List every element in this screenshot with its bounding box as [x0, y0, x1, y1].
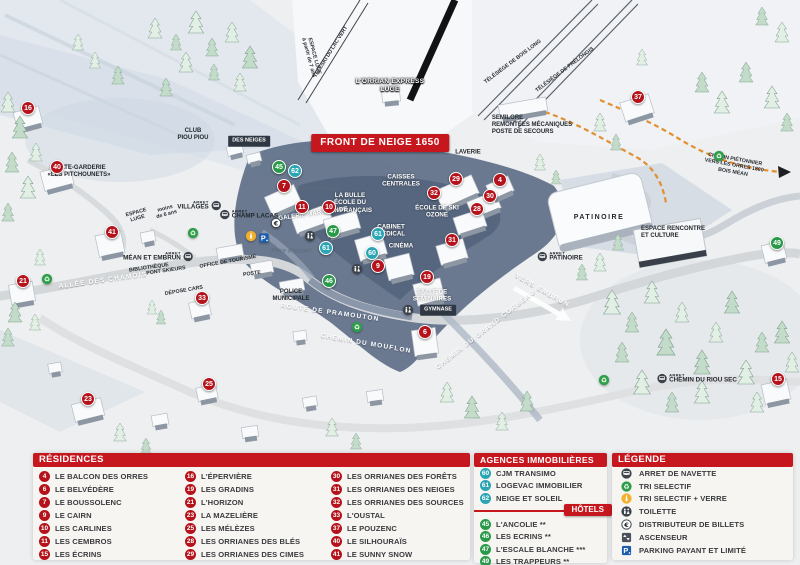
- legend-item-label: LE BALCON DES ORRES: [55, 472, 148, 481]
- pont-skieurs-label: PONT SKIEURS: [146, 265, 186, 277]
- legend-badge: 9: [39, 510, 50, 521]
- legend-item-label: NEIGE ET SOLEIL: [496, 494, 562, 503]
- legend-item: 19LES GRADINS: [185, 483, 331, 496]
- map-marker-41: 41: [105, 225, 119, 239]
- legend-item: 32LES ORRIANES DES SOURCES: [331, 496, 462, 509]
- legend-item: 33L'OUSTAL: [331, 509, 462, 522]
- legend-badge: 29: [185, 549, 196, 560]
- salle-seminaires-label: SALLE DE SÉMINAIRES: [413, 289, 452, 304]
- svg-text:€: €: [273, 219, 279, 227]
- ecole-ski-ozone-label: ÉCOLE DE SKI OZONE: [415, 205, 459, 220]
- bus-stop-label: ARRETMÉAN ET EMBRUN: [123, 252, 181, 263]
- legend-key-item: TOILETTE: [612, 505, 793, 518]
- glass-icon: [246, 231, 257, 242]
- legend-item-label: LA MAZELIÈRE: [201, 511, 258, 520]
- legend-badge: 28: [185, 536, 196, 547]
- legend-badge: 23: [185, 510, 196, 521]
- espace-rencontre-label: ESPACE RENCONTRE ET CULTURE: [641, 226, 705, 240]
- office-de-tourisme-label: OFFICE DE TOURISME: [199, 254, 257, 270]
- map-marker-25: 25: [202, 377, 216, 391]
- map-marker-29: 29: [449, 172, 463, 186]
- legend-item: 7LE BOUSSOLENC: [39, 496, 185, 509]
- legend-item-label: LES GRADINS: [201, 485, 254, 494]
- bus-icon: [220, 210, 230, 220]
- residences-columns: 4LE BALCON DES ORRES6LE BELVÉDÈRE7LE BOU…: [33, 467, 470, 561]
- legend-item-label: LE CAIRN: [55, 511, 92, 520]
- legend-item-label: LES ECRINS **: [496, 532, 551, 541]
- legend-item: 37LE POUZENC: [331, 522, 462, 535]
- legend-item-label: LES MÉLÈZES: [201, 524, 255, 533]
- bus-stop: ARRETMÉAN ET EMBRUN: [123, 252, 193, 263]
- map-marker-9: 9: [371, 259, 385, 273]
- parking-icon: P: [621, 545, 632, 556]
- place-du-festival-label: Place du festival: [296, 186, 340, 193]
- legend-item: 61LOGEVAC IMMOBILIER: [480, 480, 607, 493]
- legend-badge: 4: [39, 471, 50, 482]
- elevator-icon: [621, 532, 632, 543]
- recycle-icon: ♻: [714, 151, 725, 162]
- hotels-divider: HÔTELS: [474, 506, 607, 517]
- parking-icon: P: [259, 233, 270, 244]
- bus-stop: ARRETCHAMP LACAS: [220, 210, 278, 221]
- laverie-label: LAVERIE: [455, 149, 481, 156]
- semilore-label: SEMILORE REMONTÉES MÉCANIQUES POSTE DE S…: [492, 115, 572, 137]
- legend-key-label: TRI SELECTIF + VERRE: [639, 494, 727, 503]
- legend-section-agencies-hotels: AGENCES IMMOBILIÈRES 60CJM TRANSIMO61LOG…: [474, 453, 607, 563]
- bus-stop: ARRETCHEMIN DU RIOU SEC: [657, 374, 737, 385]
- legend-item-label: LES TRAPPEURS **: [496, 557, 569, 565]
- svg-text:P: P: [261, 234, 266, 243]
- bus-stop-label: ARRETCHEMIN DU RIOU SEC: [669, 374, 737, 385]
- telesiege-bois-long-label: TÉLÉSIÈGE DE BOIS LONG: [483, 38, 543, 85]
- legend-item-label: LE SILHOURAÏS: [347, 537, 407, 546]
- map-marker-4: 4: [493, 173, 507, 187]
- teleski-lac-vert-label: TÉLÉSKI DU LAC VERT: [313, 25, 350, 79]
- legend-item: 29LES ORRIANES DES CIMES: [185, 548, 331, 561]
- legend-item-label: L'HORIZON: [201, 498, 243, 507]
- legend-key-item: TRI SELECTIF + VERRE: [612, 493, 793, 506]
- chemin-pietonnier-label: CHEMIN PIÉTONNIER VERS LES ORRES 1800 BO…: [703, 151, 765, 180]
- legend-badge: 21: [185, 497, 196, 508]
- toilet-icon: [352, 264, 363, 275]
- legend-item: 31LES ORRIANES DES NEIGES: [331, 483, 462, 496]
- legend-key-label: ASCENSEUR: [639, 533, 688, 542]
- map-marker-23: 23: [81, 392, 95, 406]
- recycle-icon: ♻: [42, 274, 53, 285]
- legend-item-label: LES ORRIANES DES SOURCES: [347, 498, 464, 507]
- orrian-express-label: L'ORRIAN EXPRESS LUGE: [356, 78, 424, 94]
- map-marker-33: 33: [195, 291, 209, 305]
- resort-map-page: FRONT DE NEIGE 1650L'ORRIAN EXPRESS LUGE…: [0, 0, 800, 565]
- legend-item: 16L'ÉPERVIÈRE: [185, 470, 331, 483]
- bus-stop: ARRETPATINOIRE: [537, 252, 582, 263]
- allee-des-chamois-label: ALLÉE DES CHAMOIS: [58, 271, 148, 291]
- legend-badge: 16: [185, 471, 196, 482]
- svg-text:♻: ♻: [601, 376, 607, 384]
- jardin-des-neiges-label: DES NEIGES: [228, 136, 270, 147]
- legend-badge: 47: [480, 544, 491, 555]
- chemin-mouflon-label: CHEMIN DU MOUFLON: [320, 332, 412, 356]
- legend-item: 62NEIGE ET SOLEIL: [480, 492, 607, 505]
- moins-6-ans-label: moins de 6 ans: [154, 203, 178, 221]
- agencies-header: AGENCES IMMOBILIÈRES: [474, 453, 607, 467]
- bus-stop-name: MÉAN ET EMBRUN: [123, 256, 181, 263]
- legend-key-label: ARRET DE NAVETTE: [639, 469, 716, 478]
- club-piou-piou-label: CLUB PIOU PIOU: [177, 128, 208, 142]
- legend-section-key: LÉGENDE ARRET DE NAVETTE♻TRI SELECTIFTRI…: [612, 453, 793, 560]
- legend-key-label: PARKING PAYANT ET LIMITÉ: [639, 546, 746, 555]
- galerie-marchande-label: GALERIE MARCHANDE: [278, 205, 348, 222]
- legend-item-label: L'ANCOLIE **: [496, 520, 546, 529]
- bus-stop-name: CHAMP LACAS: [232, 214, 278, 221]
- map-marker-6: 6: [418, 325, 432, 339]
- legend-item: 40LE SILHOURAÏS: [331, 535, 462, 548]
- legend-item: 30LES ORRIANES DES FORÊTS: [331, 470, 462, 483]
- map-marker-37: 37: [631, 90, 645, 104]
- legend-badge: 45: [480, 519, 491, 530]
- recycle-icon: ♻: [188, 228, 199, 239]
- map-marker-47: 47: [326, 224, 340, 238]
- toilet-icon: [621, 506, 632, 517]
- legend-item: 11LES CEMBROS: [39, 535, 185, 548]
- recycle-icon: ♻: [599, 375, 610, 386]
- residences-col-3: 30LES ORRIANES DES FORÊTS31LES ORRIANES …: [331, 470, 462, 561]
- legend-item-label: LOGEVAC IMMOBILIER: [496, 481, 582, 490]
- legend-badge: 30: [331, 471, 342, 482]
- map-marker-62: 62: [288, 164, 302, 178]
- map-marker-15: 15: [771, 372, 785, 386]
- legend-badge: 60: [480, 468, 491, 479]
- residences-col-2: 16L'ÉPERVIÈRE19LES GRADINS21L'HORIZON23L…: [185, 470, 331, 561]
- legend-badge: 7: [39, 497, 50, 508]
- map-marker-60: 60: [365, 246, 379, 260]
- legend-item-label: L'ESCALE BLANCHE ***: [496, 545, 585, 554]
- hotels-list: 45L'ANCOLIE **46LES ECRINS **47L'ESCALE …: [474, 518, 607, 565]
- bus-stop-name: CHEMIN DU RIOU SEC: [669, 378, 737, 385]
- legend-badge: 61: [480, 480, 491, 491]
- patinoire-building-label: PATINOIRE: [574, 214, 625, 222]
- svg-text:♻: ♻: [354, 323, 360, 331]
- legend-badge: 46: [480, 531, 491, 542]
- bus-icon: [537, 252, 547, 262]
- hotels-header: HÔTELS: [564, 504, 612, 516]
- key-list: ARRET DE NAVETTE♻TRI SELECTIFTRI SELECTI…: [612, 467, 793, 557]
- legend-item-label: LES CARLINES: [55, 524, 112, 533]
- bus-stop-label: ARRETCHAMP LACAS: [232, 210, 278, 221]
- legend-item-label: LES ORRIANES DES NEIGES: [347, 485, 455, 494]
- map-marker-61: 61: [371, 227, 385, 241]
- bus-icon: [621, 468, 632, 479]
- legend-key-label: DISTRIBUTEUR DE BILLETS: [639, 520, 744, 529]
- bus-icon: [657, 374, 667, 384]
- bibliotheque-label: BIBLIOTHÈQUE: [129, 262, 170, 274]
- chemin-grand-corbeau-label: CHEMIN DU GRAND CORBEAU: [434, 289, 537, 372]
- map-marker-11: 11: [295, 200, 309, 214]
- bus-stop-label: ARRETVILLAGES: [177, 201, 209, 212]
- glass-icon: [621, 493, 632, 504]
- legend-item-label: LES CEMBROS: [55, 537, 112, 546]
- legend-item: 15LES ÉCRINS: [39, 548, 185, 561]
- svg-text:P: P: [623, 546, 628, 555]
- route-pramouton-label: ROUTE DE PRAMOUTON: [280, 302, 380, 324]
- legend-key-item: €DISTRIBUTEUR DE BILLETS: [612, 518, 793, 531]
- legend-key-item: ASCENSEUR: [612, 531, 793, 544]
- map-marker-45: 45: [272, 160, 286, 174]
- agencies-list: 60CJM TRANSIMO61LOGEVAC IMMOBILIER62NEIG…: [474, 467, 607, 505]
- legend-item-label: CJM TRANSIMO: [496, 469, 556, 478]
- legend-badge: 33: [331, 510, 342, 521]
- legend-badge: 31: [331, 484, 342, 495]
- espace-luge-track-label: ESPACE LUGE à partir de 7 ans: [300, 36, 323, 79]
- bus-stop: ARRETVILLAGES: [177, 201, 221, 212]
- map-marker-31: 31: [445, 233, 459, 247]
- caisses-centrales-label: CAISSES CENTRALES: [382, 174, 420, 189]
- svg-text:♻: ♻: [716, 152, 722, 160]
- legend-item: 6LE BELVÉDÈRE: [39, 483, 185, 496]
- cinema-label: CINÉMA: [389, 242, 413, 249]
- legend-item: 45L'ANCOLIE **: [480, 518, 607, 531]
- legend-key-label: TRI SELECTIF: [639, 482, 691, 491]
- map-marker-49: 49: [770, 236, 784, 250]
- legend-item-label: L'ÉPERVIÈRE: [201, 472, 252, 481]
- legend-item: 60CJM TRANSIMO: [480, 467, 607, 480]
- residences-col-1: 4LE BALCON DES ORRES6LE BELVÉDÈRE7LE BOU…: [39, 470, 185, 561]
- legend-item-label: LES ORRIANES DES CIMES: [201, 550, 304, 559]
- legend-item: 25LES MÉLÈZES: [185, 522, 331, 535]
- svg-text:♻: ♻: [44, 275, 50, 283]
- legend-item: 47L'ESCALE BLANCHE ***: [480, 543, 607, 556]
- legend-key-item: ARRET DE NAVETTE: [612, 467, 793, 480]
- legend-key-item: ♻TRI SELECTIF: [612, 480, 793, 493]
- svg-text:♻: ♻: [623, 483, 629, 491]
- bus-stop-label: ARRETPATINOIRE: [549, 252, 582, 263]
- map-marker-21: 21: [16, 274, 30, 288]
- legend-item: 41LE SUNNY SNOW: [331, 548, 462, 561]
- legend-badge: 10: [39, 523, 50, 534]
- legend-badge: 37: [331, 523, 342, 534]
- legend-key-label: TOILETTE: [639, 507, 676, 516]
- map-marker-61: 61: [319, 241, 333, 255]
- place-accueil-label: Place d'accueil: [271, 248, 311, 255]
- map-marker-46: 46: [322, 274, 336, 288]
- legend-item-label: LE SUNNY SNOW: [347, 550, 412, 559]
- legend-badge: 49: [480, 556, 491, 565]
- map-marker-19: 19: [420, 270, 434, 284]
- legend-item-label: L'OUSTAL: [347, 511, 385, 520]
- legend-item: 21L'HORIZON: [185, 496, 331, 509]
- vers-embrun-label: VERS EMBRUN: [514, 272, 571, 309]
- map-marker-16: 16: [21, 101, 35, 115]
- legend-badge: 11: [39, 536, 50, 547]
- legend-item: 46LES ECRINS **: [480, 530, 607, 543]
- legend-item: 9LE CAIRN: [39, 509, 185, 522]
- euro-icon: €: [621, 519, 632, 530]
- legend-badge: 62: [480, 493, 491, 504]
- legend-badge: 25: [185, 523, 196, 534]
- espace-luge-small-label: ESPACE LUGE: [125, 207, 149, 225]
- legend-badge: 15: [39, 549, 50, 560]
- recycle-icon: ♻: [352, 322, 363, 333]
- legend-badge: 40: [331, 536, 342, 547]
- legend-item: 28LES ORRIANES DES BLÉS: [185, 535, 331, 548]
- map-marker-30: 30: [483, 189, 497, 203]
- legend-badge: 41: [331, 549, 342, 560]
- front-de-neige-banner: FRONT DE NEIGE 1650: [311, 134, 449, 152]
- map-marker-32: 32: [427, 186, 441, 200]
- police-municipale-label: POLICE MUNICIPALE: [273, 289, 310, 303]
- legend-item-label: LE POUZENC: [347, 524, 397, 533]
- legend-item-label: LE BOUSSOLENC: [55, 498, 122, 507]
- map-marker-28: 28: [470, 202, 484, 216]
- bus-icon: [183, 252, 193, 262]
- poste-label: POSTE: [243, 270, 262, 279]
- bus-stop-name: PATINOIRE: [549, 256, 582, 263]
- toilet-icon: [305, 231, 316, 242]
- legend-item: 4LE BALCON DES ORRES: [39, 470, 185, 483]
- svg-text:♻: ♻: [190, 229, 196, 237]
- recycle-icon: ♻: [621, 481, 632, 492]
- residences-header: RÉSIDENCES: [33, 453, 470, 467]
- legend-section-residences: RÉSIDENCES 4LE BALCON DES ORRES6LE BELVÉ…: [33, 453, 470, 560]
- map-marker-40: 40: [50, 160, 64, 174]
- legend-item: 23LA MAZELIÈRE: [185, 509, 331, 522]
- legend-item-label: LES ORRIANES DES FORÊTS: [347, 472, 457, 481]
- legend-badge: 6: [39, 484, 50, 495]
- legend-key-item: PPARKING PAYANT ET LIMITÉ: [612, 544, 793, 557]
- legend-badge: 32: [331, 497, 342, 508]
- telesiege-prelongis-label: TÉLÉSIÈGE DE PRÉLONGIS: [535, 46, 596, 94]
- svg-text:€: €: [623, 521, 629, 529]
- legend-badge: 19: [185, 484, 196, 495]
- map-marker-7: 7: [277, 179, 291, 193]
- legend-item-label: LE BELVÉDÈRE: [55, 485, 114, 494]
- toilet-icon: [403, 305, 414, 316]
- legend-item-label: LES ORRIANES DES BLÉS: [201, 537, 300, 546]
- key-header: LÉGENDE: [612, 453, 793, 467]
- map-marker-10: 10: [322, 200, 336, 214]
- legend-item: 49LES TRAPPEURS **: [480, 556, 607, 565]
- bus-stop-name: VILLAGES: [177, 205, 209, 212]
- legend-item-label: LES ÉCRINS: [55, 550, 102, 559]
- gymnase-label: GYMNASE: [420, 305, 456, 316]
- legend-item: 10LES CARLINES: [39, 522, 185, 535]
